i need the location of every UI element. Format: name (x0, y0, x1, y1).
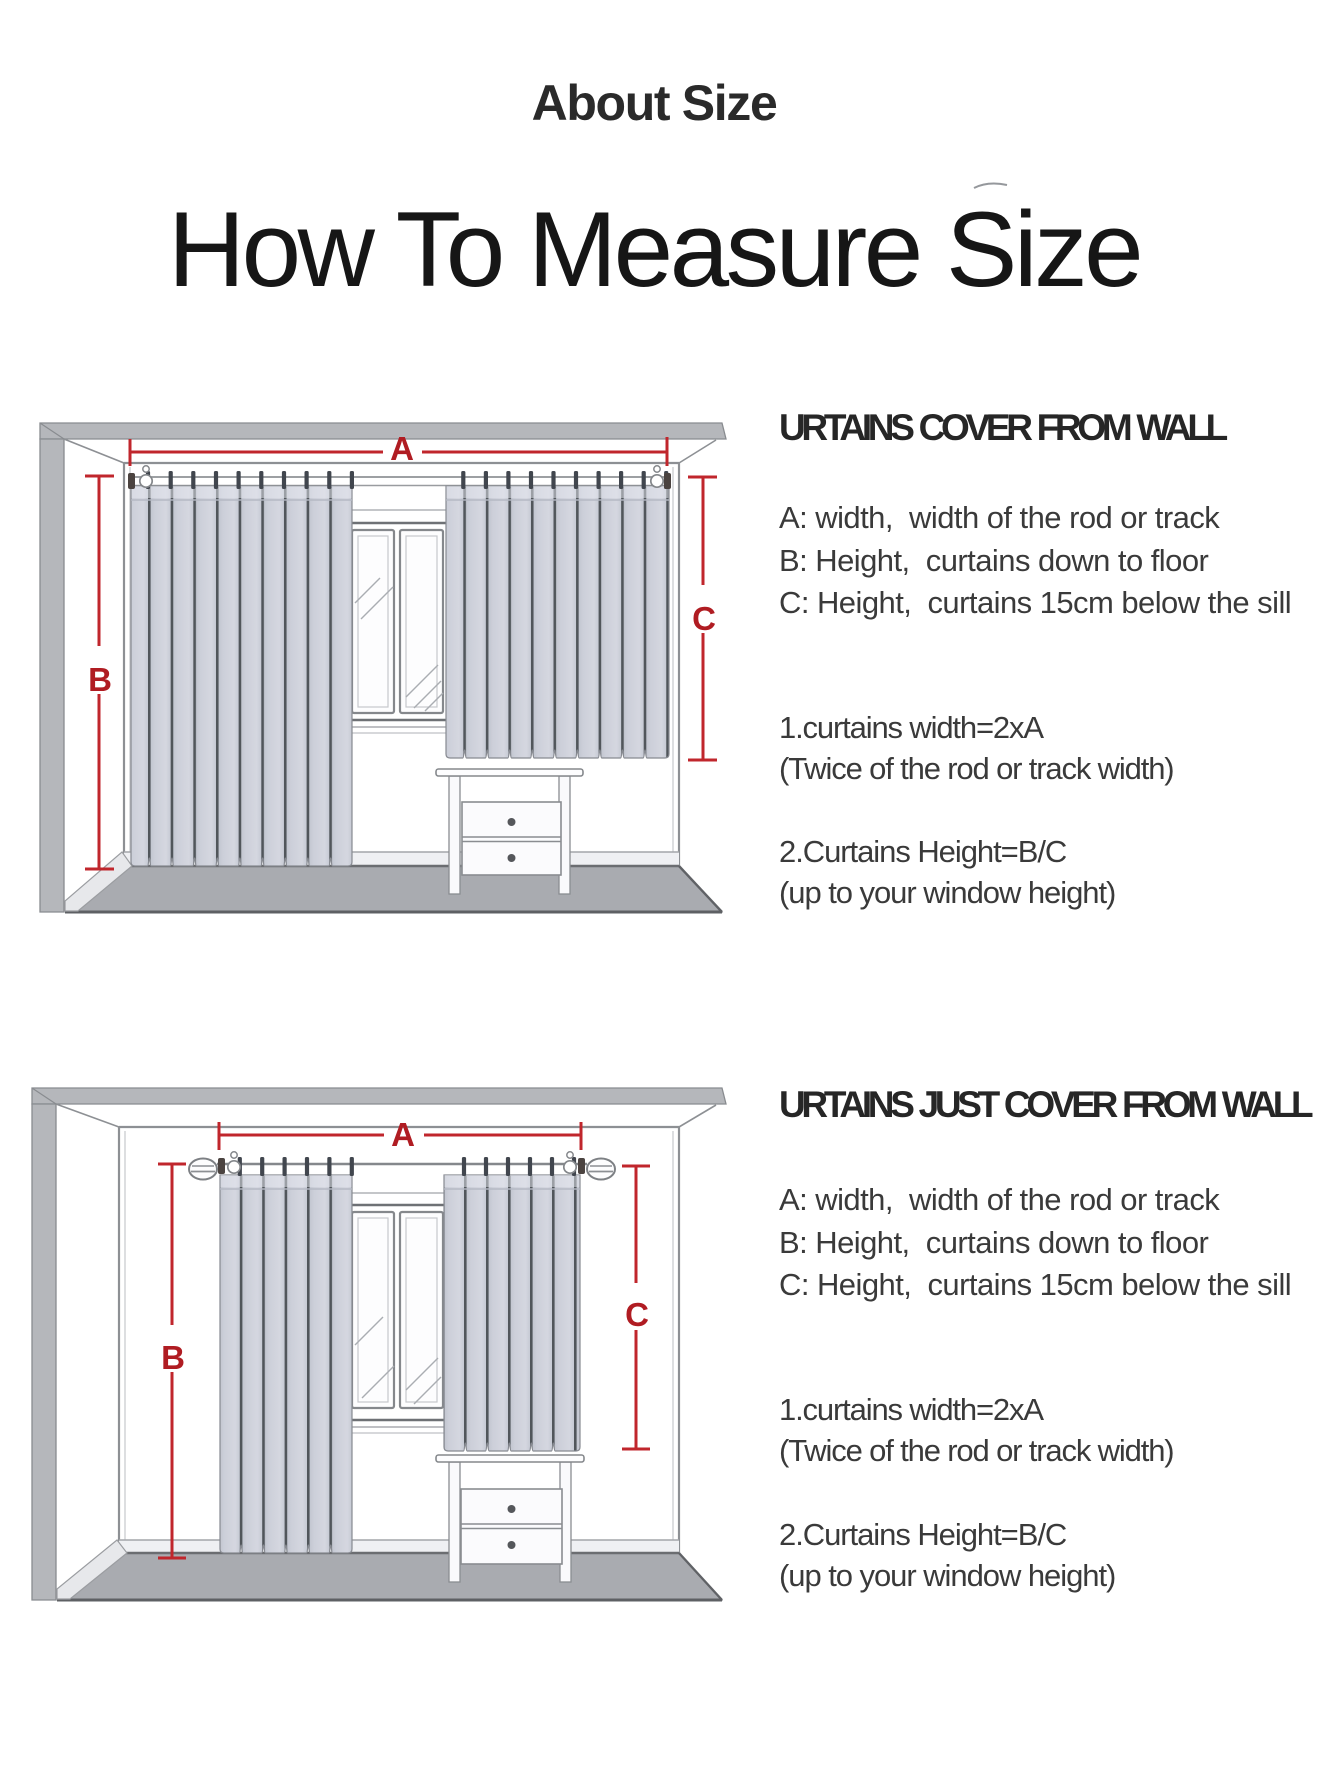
svg-text:B: B (161, 1339, 185, 1376)
svg-text:C: C (625, 1296, 649, 1333)
svg-text:A: A (390, 430, 414, 467)
svg-text:B: B (88, 661, 112, 698)
svg-text:C: C (692, 600, 716, 637)
svg-text:A: A (391, 1116, 415, 1153)
